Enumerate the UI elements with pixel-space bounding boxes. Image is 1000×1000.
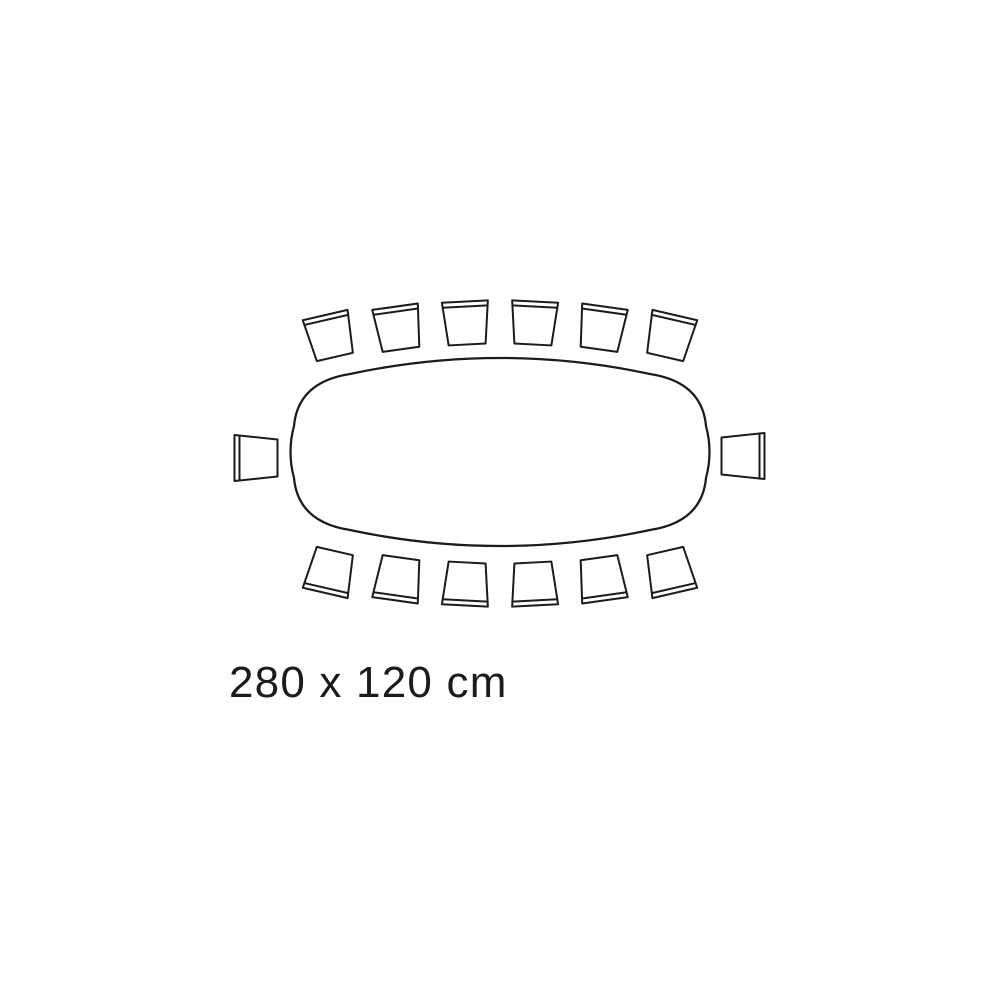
chair-bottom-6 xyxy=(643,546,697,598)
chair-bottom-3 xyxy=(442,561,490,606)
chair-bottom-4 xyxy=(510,561,558,606)
chair-bottom-2 xyxy=(372,555,424,604)
chair-top-6 xyxy=(643,310,697,362)
seating-diagram: 280 x 120 cm xyxy=(0,0,1000,1000)
chair-top-1 xyxy=(303,310,357,362)
chair-bottom-1 xyxy=(303,546,357,598)
chair-right-end xyxy=(722,433,765,479)
table-top xyxy=(291,358,710,546)
chair-top-3 xyxy=(442,300,490,345)
table-seating-plan-svg xyxy=(0,0,1000,1000)
chair-top-4 xyxy=(510,300,558,345)
dimensions-label: 280 x 120 cm xyxy=(229,661,508,705)
chair-bottom-5 xyxy=(576,555,628,604)
chair-top-5 xyxy=(576,304,628,353)
chair-left-end xyxy=(235,435,278,481)
chair-top-2 xyxy=(372,304,424,353)
